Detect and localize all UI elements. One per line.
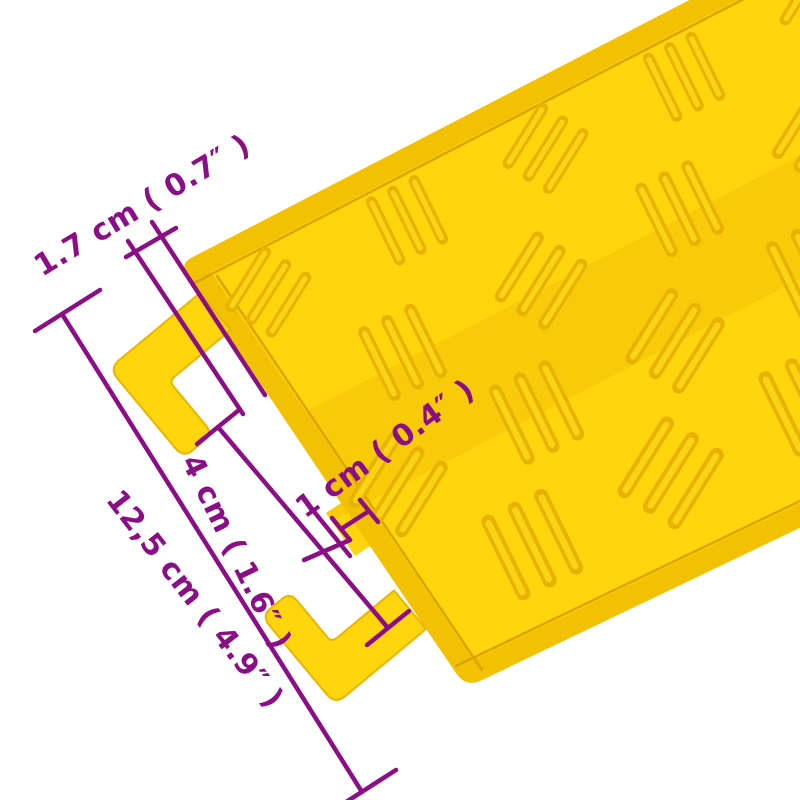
product-dimension-image: 1.7 cm ( 0.7″ ) 4 cm ( 1.6″ ) 1 cm ( 0.4… xyxy=(0,0,800,800)
dimension-diagram-canvas: 1.7 cm ( 0.7″ ) 4 cm ( 1.6″ ) 1 cm ( 0.4… xyxy=(0,0,800,800)
